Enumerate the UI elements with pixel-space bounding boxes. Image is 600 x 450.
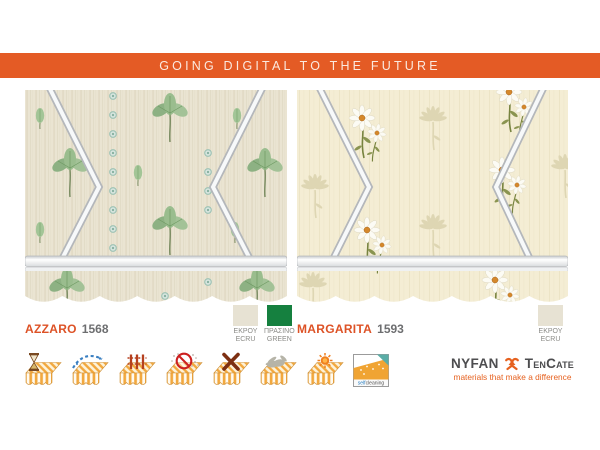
azzaro-swatches: ΕΚΡΟΥ ECRU ΠΡΑΣΙΝΟ GREEN: [233, 305, 295, 343]
cross-awning-icon: [212, 352, 250, 390]
no-dirt-awning-icon: [165, 352, 203, 390]
selfcleaning-awning-icon: selfcleaning: [352, 352, 390, 390]
product-name: AZZARO: [25, 322, 77, 336]
sun-awning-icon: [306, 352, 344, 390]
brand-name-tencate: TenCate: [525, 356, 574, 371]
margarita-swatches: ΕΚΡΟΥ ECRU: [538, 305, 563, 343]
swatch-label-en: ECRU: [539, 336, 563, 344]
awning-front-bar: [297, 256, 568, 272]
brand-tagline: materials that make a difference: [450, 372, 575, 382]
swatch-ecru: ΕΚΡΟΥ ECRU: [538, 305, 563, 343]
banner-title: GOING DIGITAL TO THE FUTURE: [159, 59, 441, 73]
swatch-label-gr: ΕΚΡΟΥ: [234, 328, 258, 336]
tencate-knot-icon: [502, 355, 522, 371]
brand-name-nyfan: NYFAN: [451, 356, 499, 371]
swatch-color: [233, 305, 258, 326]
azzaro-awning-preview: [25, 90, 287, 313]
azzaro-label: AZZARO1568: [25, 320, 109, 338]
margarita-label: MARGARITA1593: [297, 320, 404, 338]
selfcleaning-label: selfcleaning: [358, 381, 385, 387]
banner: GOING DIGITAL TO THE FUTURE: [0, 53, 600, 78]
margarita-awning-preview: [297, 90, 568, 313]
swatch-green: ΠΡΑΣΙΝΟ GREEN: [264, 305, 295, 343]
weave-fence-awning-icon: [118, 352, 156, 390]
swatch-ecru: ΕΚΡΟΥ ECRU: [233, 305, 258, 343]
swatch-label-gr: ΕΚΡΟΥ: [539, 328, 563, 336]
water-drops-awning-icon: [71, 352, 109, 390]
swatch-color: [267, 305, 292, 326]
swatch-label-gr: ΠΡΑΣΙΝΟ: [264, 328, 295, 336]
swatch-color: [538, 305, 563, 326]
brand-logo: NYFAN TenCate materials that make a diff…: [450, 355, 575, 382]
product-code: 1593: [377, 322, 404, 336]
swatch-label-en: ECRU: [234, 336, 258, 344]
hourglass-awning-icon: [24, 352, 62, 390]
awning-front-bar: [25, 256, 287, 272]
catalog-page: GOING DIGITAL TO THE FUTURE: [0, 0, 600, 450]
swatch-label-en: GREEN: [264, 336, 295, 344]
product-name: MARGARITA: [297, 322, 372, 336]
hand-awning-icon: [259, 352, 297, 390]
product-code: 1568: [82, 322, 109, 336]
